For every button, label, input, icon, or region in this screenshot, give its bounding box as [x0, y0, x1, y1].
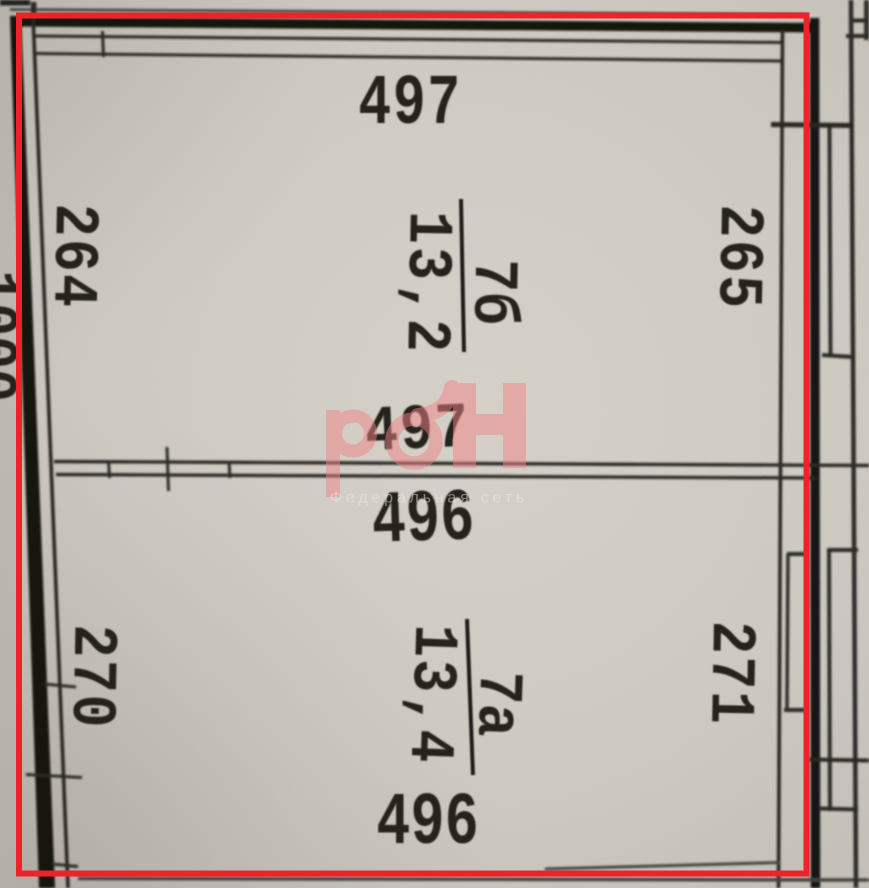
svg-text:Федеральная сеть: Федеральная сеть — [330, 490, 528, 507]
svg-text:1000: 1000 — [0, 269, 29, 402]
svg-text:271: 271 — [693, 620, 766, 726]
svg-text:7б: 7б — [456, 258, 529, 325]
svg-text:13,4: 13,4 — [392, 623, 468, 765]
svg-text:270: 270 — [54, 624, 127, 730]
svg-text:496: 496 — [376, 781, 479, 865]
svg-text:497: 497 — [358, 65, 461, 146]
svg-text:265: 265 — [701, 204, 774, 311]
svg-text:264: 264 — [36, 203, 109, 310]
svg-text:13,2: 13,2 — [389, 210, 463, 355]
